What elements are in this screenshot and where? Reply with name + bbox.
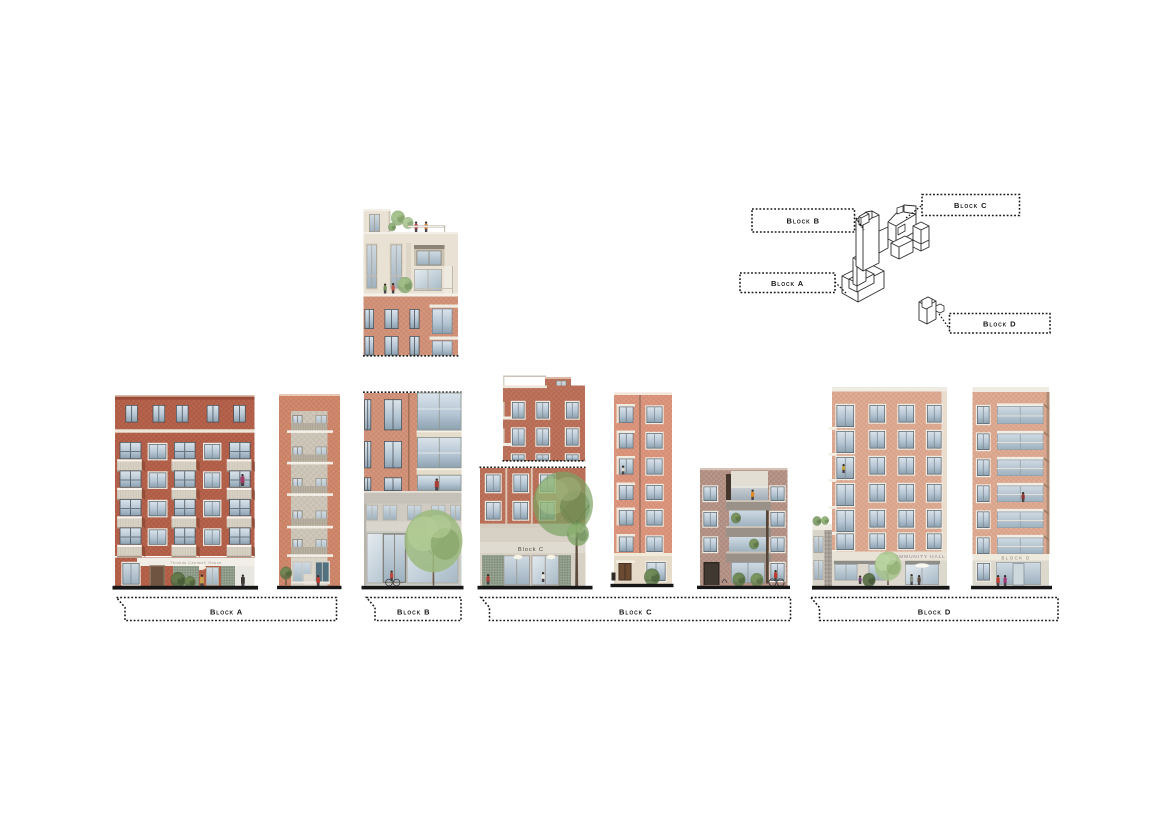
svg-text:Block B: Block B [787,217,820,226]
svg-text:Block D: Block D [983,319,1016,328]
svg-text:Block A: Block A [771,279,804,288]
svg-text:Block C: Block C [518,547,544,553]
svg-text:Block C: Block C [954,201,987,210]
svg-text:Block C: Block C [619,608,652,617]
svg-text:BLOCK D: BLOCK D [1001,555,1030,560]
svg-text:Thomas Cantwell House: Thomas Cantwell House [170,561,222,565]
svg-text:Block D: Block D [918,608,951,617]
svg-text:Block B: Block B [397,608,430,617]
svg-text:Block A: Block A [210,608,243,617]
